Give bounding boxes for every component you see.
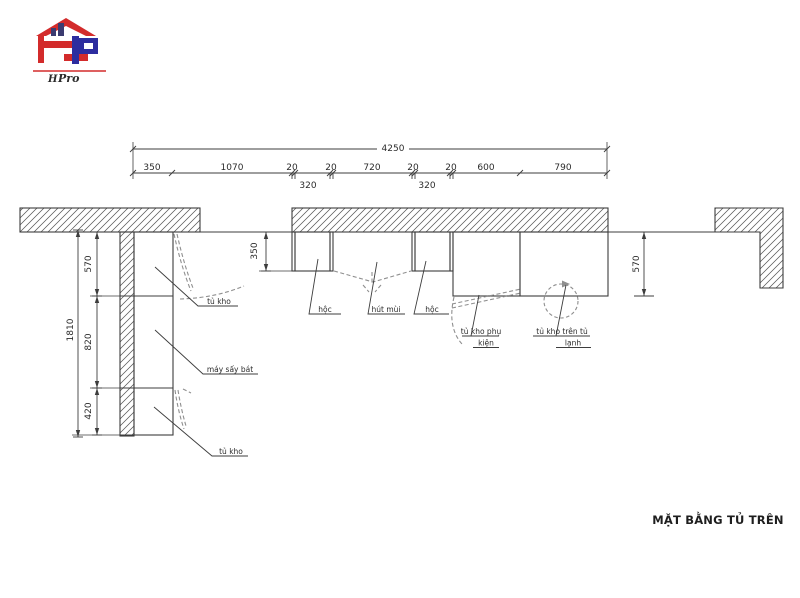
- leader-lines: [154, 259, 591, 456]
- dim-350-mid: 350: [250, 242, 260, 259]
- label-hoc-left: hộc: [318, 305, 331, 314]
- label-hut-mui: hút mùi: [372, 305, 401, 314]
- tu-kho-phu-kien-box: [453, 232, 520, 296]
- dim-320a: 320: [299, 181, 316, 191]
- cabinet-elevation-page: H Pro: [0, 0, 800, 598]
- dimension-right-570: 570: [632, 232, 654, 296]
- dim-320b: 320: [418, 181, 435, 191]
- dim-20a: 20: [286, 163, 298, 173]
- door-swing-marks: [174, 234, 578, 429]
- dim-600: 600: [477, 163, 494, 173]
- dimension-mid-350: 350: [250, 232, 292, 271]
- right-wall: [715, 208, 783, 288]
- label-hoc-right: hộc: [425, 305, 438, 314]
- dim-20b: 20: [325, 163, 337, 173]
- label-tu-kho-tren-2: lạnh: [565, 339, 581, 348]
- dim-overall: 4250: [382, 144, 405, 154]
- cabinet-labels: tủ kho máy sấy bát tủ kho hộc hút mùi hộ…: [207, 297, 588, 456]
- dim-720: 720: [363, 163, 380, 173]
- tall-cabinet-outline: [134, 232, 173, 435]
- left-column-wall: [120, 232, 134, 436]
- dim-350: 350: [143, 163, 160, 173]
- dimension-left-total: 1810: [66, 230, 83, 437]
- dim-20c: 20: [407, 163, 419, 173]
- upper-cabinet-row: [292, 232, 608, 296]
- label-tu-kho-bottom: tủ kho: [219, 447, 243, 456]
- label-tu-kho-phu-1: tủ kho phụ: [461, 327, 502, 336]
- label-tu-kho-top: tủ kho: [207, 297, 231, 306]
- hoc-left-box: [295, 232, 330, 271]
- hoc-right-box: [415, 232, 450, 271]
- dim-790: 790: [554, 163, 571, 173]
- swing-circle: [544, 284, 578, 318]
- cabinet-drawing: 4250 350 1070 20 20 720 20 20: [0, 0, 800, 598]
- left-wall: [20, 208, 200, 232]
- dimension-left-segments: 570 820 420: [72, 232, 120, 435]
- label-tu-kho-tren-1: tủ kho trên tủ: [536, 327, 588, 336]
- drawing-title: MẶT BẰNG TỦ TRÊN: [640, 513, 796, 527]
- dim-570-right: 570: [632, 255, 642, 272]
- dim-1810: 1810: [66, 318, 76, 341]
- dim-420: 420: [84, 402, 94, 419]
- label-may-say-bat: máy sấy bát: [207, 365, 253, 374]
- dim-20d: 20: [445, 163, 457, 173]
- middle-wall: [292, 208, 608, 232]
- dim-1070: 1070: [221, 163, 244, 173]
- label-tu-kho-phu-2: kiện: [478, 339, 494, 348]
- dim-820: 820: [84, 333, 94, 350]
- dimension-row-segments: 350 1070 20 20 720 20 20 600 790 320 320: [130, 163, 610, 191]
- dim-570-left: 570: [84, 255, 94, 272]
